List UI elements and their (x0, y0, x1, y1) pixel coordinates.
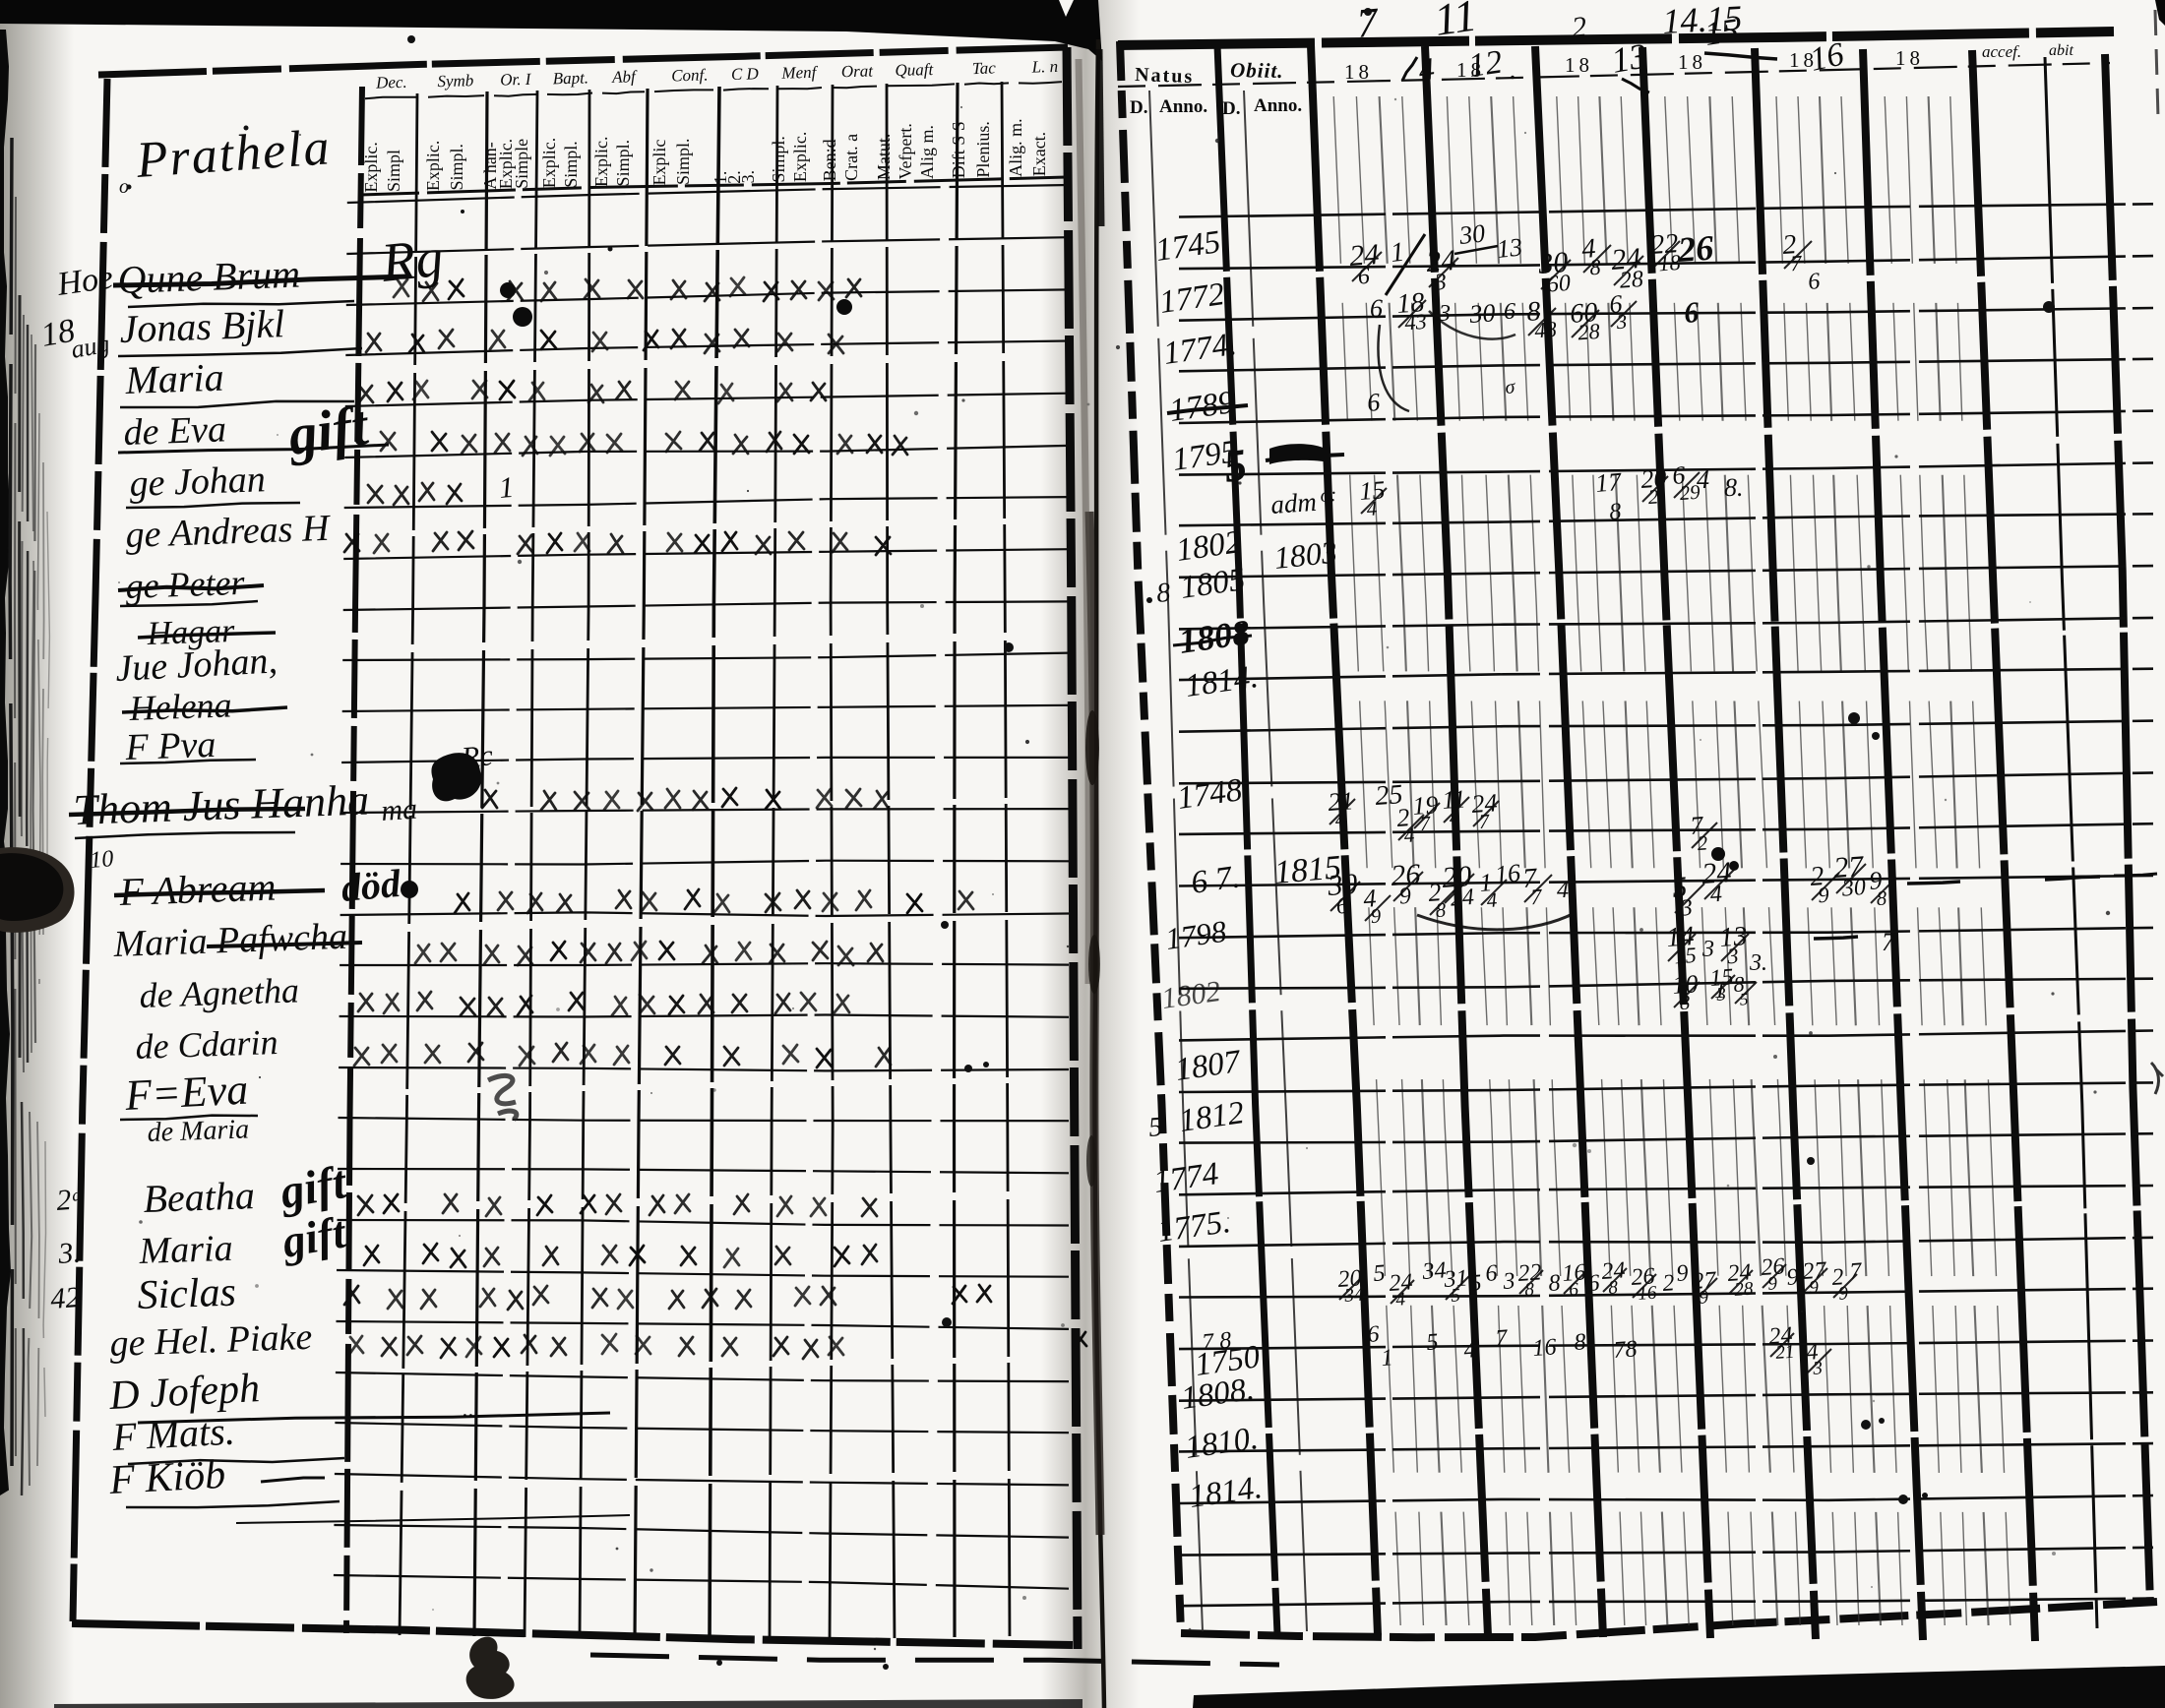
svg-text:Natus: Natus (1135, 64, 1195, 88)
svg-text:4: 4 (1395, 1289, 1406, 1311)
svg-text:48: 48 (1533, 317, 1557, 343)
svg-text:6: 6 (1370, 294, 1383, 323)
svg-text:Simpl: Simpl (384, 150, 403, 192)
svg-text:2: 2 (1571, 11, 1588, 44)
svg-text:18: 18 (1565, 53, 1593, 77)
svg-text:Simple: Simple (512, 139, 531, 189)
svg-text:de Maria: de Maria (147, 1114, 249, 1148)
svg-text:Quaft: Quaft (895, 60, 934, 80)
svg-text:ge Hel. Piake: ge Hel. Piake (109, 1316, 313, 1365)
svg-text:17: 17 (1594, 467, 1623, 498)
svg-text:8.: 8. (1724, 473, 1744, 502)
svg-text:2ᵈ: 2ᵈ (55, 1183, 83, 1217)
svg-text:6: 6 (1367, 1321, 1381, 1348)
svg-text:6: 6 (1807, 269, 1821, 295)
svg-text:6 7.: 6 7. (1189, 859, 1242, 901)
svg-text:Ben:d: Ben:d (820, 139, 839, 181)
svg-text:ge Andreas H: ge Andreas H (125, 508, 333, 556)
svg-text:9: 9 (1817, 883, 1829, 908)
svg-text:Matut.: Matut. (874, 134, 894, 181)
svg-text:16: 16 (1494, 858, 1522, 889)
svg-text:.: . (1510, 53, 1517, 86)
svg-text:8: 8 (1155, 578, 1172, 609)
svg-text:11: 11 (1431, 0, 1479, 45)
svg-text:4: 4 (1557, 878, 1569, 903)
svg-text:6: 6 (1335, 893, 1349, 920)
svg-text:2: 2 (1647, 485, 1659, 509)
svg-text:Helena: Helena (128, 685, 232, 728)
svg-text:D.: D. (1130, 97, 1147, 118)
svg-text:Explic.: Explic. (423, 141, 443, 192)
svg-text:2: 2 (1697, 831, 1708, 855)
svg-text:Orat: Orat (841, 61, 875, 81)
svg-text:F Kiöb: F Kiöb (107, 1452, 226, 1503)
svg-text:Maria: Maria (138, 1228, 233, 1272)
svg-text:Obiit.: Obiit. (1230, 58, 1284, 83)
svg-text:18: 18 (1344, 60, 1373, 84)
svg-text:Dift S S: Dift S S (949, 121, 968, 178)
svg-text:30: 30 (1457, 218, 1487, 250)
svg-text:4: 4 (1334, 808, 1346, 831)
svg-text:L. n: L. n (1030, 57, 1058, 77)
svg-text:Abf: Abf (611, 67, 638, 87)
svg-text:Or. I: Or. I (500, 70, 532, 90)
svg-text:5: 5 (1426, 1329, 1440, 1356)
svg-text:4: 4 (1366, 497, 1378, 520)
svg-text:Symb: Symb (437, 71, 473, 91)
svg-text:4: 4 (1486, 888, 1498, 912)
svg-text:Menf: Menf (780, 63, 819, 83)
svg-text:6: 6 (1683, 296, 1700, 330)
svg-text:18: 18 (1895, 46, 1924, 70)
svg-text:F Abream: F Abream (118, 864, 277, 914)
svg-text:21: 21 (1775, 1342, 1796, 1364)
svg-text:Maria: Maria (124, 355, 225, 402)
svg-text:Plenius.: Plenius. (973, 121, 993, 178)
svg-text:13: 13 (1496, 232, 1524, 264)
svg-text:Simpl.: Simpl. (613, 140, 633, 187)
svg-text:5: 5 (1469, 1270, 1483, 1297)
svg-text:13: 13 (1608, 35, 1649, 81)
svg-text:3: 3 (1433, 270, 1448, 296)
svg-text:9: 9 (1767, 1273, 1778, 1295)
svg-text:6: 6 (1587, 1270, 1601, 1297)
svg-text:9: 9 (1398, 884, 1412, 910)
svg-text:Alig. m.: Alig. m. (1006, 118, 1025, 177)
svg-text:28: 28 (1577, 319, 1600, 345)
svg-text:8: 8 (1524, 1279, 1535, 1301)
svg-text:2: 2 (1662, 1270, 1676, 1297)
svg-text:5: 5 (1451, 1285, 1461, 1307)
svg-text:5: 5 (1147, 1112, 1164, 1143)
svg-text:o:: o: (1320, 484, 1337, 507)
svg-text:3: 3 (1812, 1358, 1824, 1379)
svg-text:16: 16 (1532, 1334, 1558, 1362)
svg-text:Simpl.: Simpl. (561, 141, 581, 188)
svg-text:6: 6 (1569, 1279, 1579, 1301)
svg-text:Exact.: Exact. (1029, 132, 1049, 176)
svg-text:ge Peter: ge Peter (125, 563, 246, 606)
svg-text:4: 4 (1449, 806, 1460, 829)
svg-text:Jue Johan,: Jue Johan, (114, 640, 278, 690)
svg-text:6: 6 (1504, 299, 1515, 325)
svg-text:död: död (340, 861, 403, 910)
svg-text:Simpl.: Simpl. (769, 136, 788, 183)
svg-text:8: 8 (1588, 255, 1601, 280)
svg-text:1: 1 (498, 471, 516, 505)
svg-text:6: 6 (1485, 1260, 1499, 1287)
svg-text:12: 12 (1466, 44, 1505, 85)
svg-text:6: 6 (1357, 264, 1371, 290)
svg-text:4: 4 (1403, 823, 1415, 847)
svg-text:Anno.: Anno. (1159, 96, 1207, 117)
svg-text:Explic: Explic (649, 140, 669, 186)
svg-text:5: 5 (1739, 989, 1749, 1009)
svg-text:Qune Brum: Qune Brum (117, 252, 301, 302)
svg-text:9: 9 (1786, 1264, 1800, 1291)
svg-text:3: 3 (1502, 1268, 1516, 1295)
svg-text:6: 6 (1366, 388, 1381, 417)
svg-text:3.: 3. (1749, 950, 1767, 976)
svg-text:3: 3 (1679, 895, 1694, 922)
svg-text:8: 8 (1608, 1277, 1619, 1299)
svg-text:28: 28 (1619, 267, 1644, 294)
svg-text:3: 3 (1615, 310, 1628, 334)
svg-text:9: 9 (1699, 1287, 1709, 1309)
svg-text:7.: 7. (1882, 928, 1901, 956)
svg-text:1803: 1803 (1272, 533, 1338, 575)
svg-text:Bapt.: Bapt. (552, 68, 588, 88)
svg-text:24: 24 (1450, 884, 1475, 912)
svg-text:Alig m.: Alig m. (917, 125, 937, 179)
svg-text:Crat. a: Crat. a (841, 134, 861, 181)
svg-text:Explic.: Explic. (790, 132, 810, 183)
svg-text:16: 16 (1638, 1283, 1658, 1305)
svg-text:8: 8 (1548, 1270, 1562, 1297)
svg-text:de Cdarin: de Cdarin (135, 1022, 278, 1067)
svg-text:3.: 3. (56, 1236, 82, 1270)
svg-text:Jonas Bjkl: Jonas Bjkl (119, 301, 285, 351)
svg-text:gift: gift (282, 393, 374, 467)
svg-text:Tac: Tac (972, 58, 997, 78)
svg-text:9: 9 (1838, 1283, 1849, 1305)
svg-text:Explic.: Explic. (361, 142, 381, 193)
svg-text:42: 42 (49, 1281, 81, 1315)
svg-text:de Agnetha: de Agnetha (139, 970, 300, 1015)
svg-text:28: 28 (1734, 1279, 1755, 1301)
svg-text:78: 78 (1613, 1336, 1639, 1364)
svg-text:Simpl.: Simpl. (673, 138, 693, 185)
svg-text:9: 9 (1809, 1277, 1820, 1299)
svg-text:Anno.: Anno. (1254, 95, 1302, 116)
svg-text:9: 9 (1676, 1260, 1690, 1287)
svg-text:Explic.: Explic. (591, 136, 611, 187)
svg-text:4: 4 (1709, 882, 1723, 908)
svg-text:Simpl.: Simpl. (447, 144, 466, 191)
svg-text:Explic.: Explic. (539, 138, 559, 189)
svg-text:adm: adm (1269, 487, 1317, 519)
svg-text:1: 1 (1714, 978, 1726, 1004)
svg-text:Thom Jus Hanha: Thom Jus Hanha (73, 776, 370, 834)
svg-text:8: 8 (1608, 499, 1622, 525)
svg-text:D.: D. (1222, 98, 1240, 119)
svg-text:ma: ma (380, 793, 418, 827)
svg-text:4: 4 (1463, 1337, 1477, 1364)
svg-text:Beatha: Beatha (143, 1173, 256, 1221)
svg-text:F=Eva: F=Eva (123, 1066, 249, 1121)
svg-text:3.: 3. (738, 170, 758, 184)
svg-text:3: 3 (1438, 301, 1451, 327)
svg-text:7 8: 7 8 (1201, 1327, 1232, 1356)
svg-text:34: 34 (1343, 1285, 1365, 1307)
svg-text:accef.: accef. (1982, 42, 2021, 61)
svg-text:4: 4 (1697, 465, 1709, 494)
svg-text:8: 8 (1574, 1329, 1587, 1356)
svg-text:ge Johan: ge Johan (129, 458, 267, 505)
svg-text:26: 26 (1676, 228, 1715, 270)
svg-text:5: 5 (1373, 1260, 1387, 1287)
svg-text:60: 60 (1546, 271, 1572, 298)
svg-text:Vefpert.: Vefpert. (896, 123, 915, 179)
svg-text:18: 18 (1678, 50, 1706, 74)
svg-text:..: .. (463, 1397, 474, 1423)
svg-text:1: 1 (1381, 1345, 1394, 1372)
svg-text:abit: abit (2049, 42, 2073, 59)
svg-text:C D: C D (731, 64, 760, 84)
svg-text:Conf.: Conf. (671, 65, 709, 85)
svg-text:3: 3 (1701, 937, 1714, 962)
svg-text:30: 30 (1840, 875, 1867, 902)
svg-text:43: 43 (1403, 309, 1427, 335)
svg-text:Dec.: Dec. (375, 73, 407, 92)
svg-text:30: 30 (1467, 298, 1496, 329)
svg-text:14.15: 14.15 (1661, 0, 1743, 41)
svg-text:15: 15 (1673, 943, 1697, 969)
svg-text:Maria Pafwcha: Maria Pafwcha (112, 916, 348, 965)
svg-text:10: 10 (89, 846, 114, 874)
svg-text:Siclas: Siclas (137, 1270, 237, 1318)
svg-text:de Eva: de Eva (123, 408, 227, 454)
